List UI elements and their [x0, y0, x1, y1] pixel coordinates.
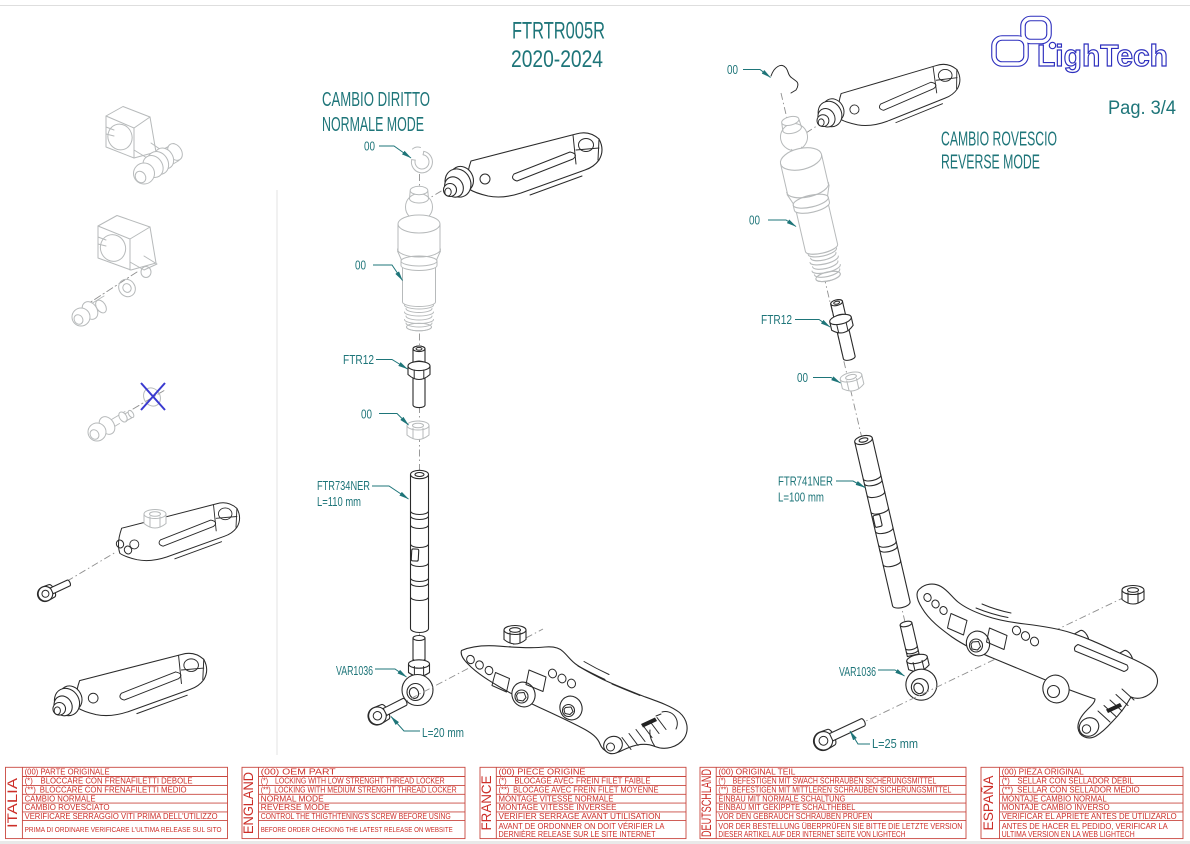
svg-text:VOR DEN GEBRAUCH SCHRAUBEN PRÜ: VOR DEN GEBRAUCH SCHRAUBEN PRÜFEN — [718, 812, 872, 821]
svg-text:L=20 mm: L=20 mm — [422, 725, 464, 740]
svg-text:VERIFICARE SERRAGGIO VITI PRIM: VERIFICARE SERRAGGIO VITI PRIMA DELL'UTI… — [25, 812, 218, 821]
svg-text:NORMAL MODE: NORMAL MODE — [261, 794, 324, 803]
svg-text:CONTROL THE THIGTHTENING'S SCR: CONTROL THE THIGTHTENING'S SCREW BEFORE … — [261, 812, 451, 821]
svg-text:MONTAJE CAMBIO INVERSO: MONTAJE CAMBIO INVERSO — [1002, 803, 1110, 812]
svg-text:FTR12: FTR12 — [343, 352, 374, 367]
svg-text:ESPAÑA: ESPAÑA — [981, 776, 996, 831]
svg-text:CAMBIO NORMALE: CAMBIO NORMALE — [25, 794, 96, 803]
svg-text:MONTAGE VITESSE INVERSEE: MONTAGE VITESSE INVERSEE — [499, 803, 617, 812]
svg-text:(*) BLOCAGE AVEC FREIN FILET: (*) BLOCAGE AVEC FREIN FILET FAIBLE — [499, 777, 651, 786]
svg-text:(**) BLOCCARE CON FRENAFILETTI: (**) BLOCCARE CON FRENAFILETTI MEDIO — [25, 786, 187, 795]
svg-text:VAR1036: VAR1036 — [336, 663, 373, 678]
svg-text:FTR12: FTR12 — [761, 312, 792, 327]
svg-text:(00) PARTE ORIGINALE: (00) PARTE ORIGINALE — [25, 767, 110, 776]
svg-text:(*) BEFESTIGEN MIT SWACH SCHR: (*) BEFESTIGEN MIT SWACH SCHRAUBEN SICHE… — [718, 777, 936, 786]
svg-text:MONTAJE CAMBIO NORMAL: MONTAJE CAMBIO NORMAL — [1002, 794, 1108, 803]
svg-text:00: 00 — [749, 213, 760, 228]
svg-text:ULTIMA VERSION EN LA WEB LIGHT: ULTIMA VERSION EN LA WEB LIGHTECH — [1002, 830, 1135, 839]
svg-text:FTR734NER: FTR734NER — [317, 478, 370, 493]
svg-text:(*) BLOCCARE CON FRENAFILETTI: (*) BLOCCARE CON FRENAFILETTI DEBOLE — [25, 777, 193, 786]
svg-text:(**) SELLAR CON SELLADOR MEDIO: (**) SELLAR CON SELLADOR MEDIO — [1002, 786, 1140, 795]
svg-text:(**) LOCKING WITH MEDIUM STREN: (**) LOCKING WITH MEDIUM STRENGHT THREAD… — [261, 786, 457, 795]
svg-text:00: 00 — [797, 370, 808, 385]
svg-text:FTR741NER: FTR741NER — [778, 474, 833, 489]
svg-text:(00) PIEZA ORIGINAL: (00) PIEZA ORIGINAL — [1002, 767, 1085, 776]
svg-text:FTRTR005R: FTRTR005R — [512, 18, 605, 45]
svg-text:00: 00 — [727, 62, 738, 77]
svg-text:00: 00 — [361, 407, 372, 422]
svg-text:(00) OEM PART: (00) OEM PART — [261, 767, 336, 776]
svg-text:L=110 mm: L=110 mm — [317, 494, 361, 509]
svg-text:L=25 mm: L=25 mm — [872, 736, 918, 751]
svg-text:CAMBIO ROVESCIO: CAMBIO ROVESCIO — [941, 129, 1057, 151]
svg-text:CAMBIO ROVESCIATO: CAMBIO ROVESCIATO — [25, 803, 110, 812]
svg-text:00: 00 — [355, 258, 366, 273]
svg-text:VERIFIER SERRAGE AVANT UTILISA: VERIFIER SERRAGE AVANT UTILISATION — [499, 812, 661, 821]
svg-text:FRANCE: FRANCE — [479, 776, 494, 831]
svg-text:REVERSE MODE: REVERSE MODE — [941, 152, 1040, 174]
svg-text:(*) SELLAR CON SELLADOR DEBIL: (*) SELLAR CON SELLADOR DEBIL — [1002, 777, 1135, 786]
svg-text:BEFORE ORDER CHECKING THE LATE: BEFORE ORDER CHECKING THE LATEST RELEASE… — [261, 825, 453, 834]
svg-text:00: 00 — [364, 139, 375, 154]
svg-text:L=100 mm: L=100 mm — [778, 490, 824, 505]
svg-text:DERNIÈRE RELEASE SUR LE SITE I: DERNIÈRE RELEASE SUR LE SITE INTERNET — [499, 830, 656, 839]
svg-text:ITALIA: ITALIA — [5, 778, 20, 828]
svg-text:PRIMA DI ORDINARE VERIFICARE L: PRIMA DI ORDINARE VERIFICARE L'ULTIMA RE… — [25, 825, 222, 834]
svg-text:REVERSE MODE: REVERSE MODE — [261, 803, 330, 812]
svg-text:DIESER ARTIKEL AUF DER INTERNE: DIESER ARTIKEL AUF DER INTERNET SEITE VO… — [718, 830, 905, 839]
svg-text:EINBAU MIT NORMALE SCHALTUNG: EINBAU MIT NORMALE SCHALTUNG — [718, 794, 845, 803]
svg-text:VERIFICAR EL APRIETE ANTES DE: VERIFICAR EL APRIETE ANTES DE UTILIZARLO — [1002, 812, 1177, 821]
svg-text:(*) LOCKING WITH LOW STRENGHT: (*) LOCKING WITH LOW STRENGHT THREAD LOC… — [261, 777, 445, 786]
svg-text:CAMBIO DIRITTO: CAMBIO DIRITTO — [322, 89, 430, 111]
svg-text:Pag. 3/4: Pag. 3/4 — [1108, 98, 1176, 119]
svg-text:(00) PIECE ORIGINE: (00) PIECE ORIGINE — [499, 767, 586, 776]
svg-text:EINBAU MIT GEKIPPTE SCHALTHEBE: EINBAU MIT GEKIPPTE SCHALTHEBEL — [718, 803, 856, 812]
svg-text:MONTAGE VITESSE NORMALE: MONTAGE VITESSE NORMALE — [499, 794, 614, 803]
svg-text:(**) BLOCAGE AVEC FREIN FILET: (**) BLOCAGE AVEC FREIN FILET MOYENNE — [499, 786, 659, 795]
svg-text:LighTech: LighTech — [1037, 38, 1168, 73]
svg-text:(00) ORIGINAL TEIL: (00) ORIGINAL TEIL — [718, 767, 796, 776]
svg-text:VAR1036: VAR1036 — [839, 664, 876, 679]
svg-text:NORMALE MODE: NORMALE MODE — [322, 114, 424, 136]
svg-text:2020-2024: 2020-2024 — [511, 46, 603, 73]
svg-text:ENGLAND: ENGLAND — [241, 772, 256, 834]
svg-text:(**) BEFESTIGEN MIT MITTLEREN: (**) BEFESTIGEN MIT MITTLEREN SCHRAUBEN … — [718, 786, 951, 795]
svg-text:DEUTSCHLAND: DEUTSCHLAND — [699, 769, 714, 837]
